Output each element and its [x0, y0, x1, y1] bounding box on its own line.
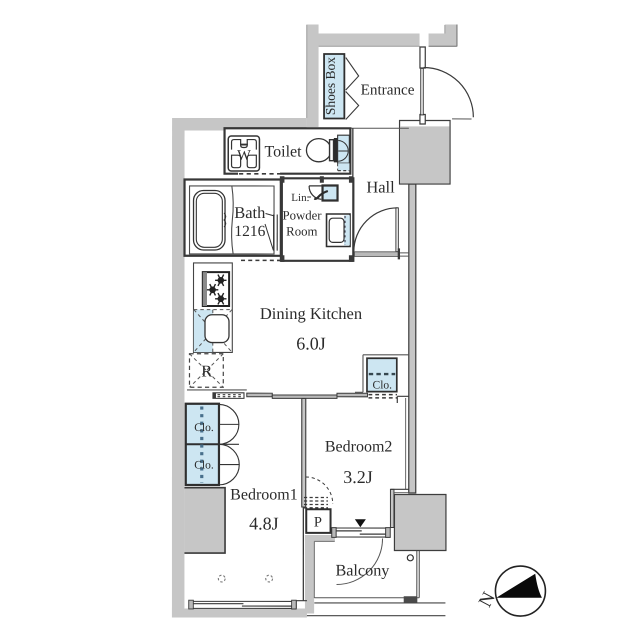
svg-text:3.2J: 3.2J: [343, 467, 373, 487]
svg-text:Clo.: Clo.: [194, 459, 214, 471]
svg-text:Dining Kitchen: Dining Kitchen: [260, 304, 362, 323]
svg-text:Clo.: Clo.: [194, 422, 214, 434]
svg-text:Shoes Box: Shoes Box: [323, 57, 338, 115]
svg-text:6.0J: 6.0J: [296, 333, 326, 353]
svg-text:W: W: [237, 148, 251, 164]
svg-text:Bedroom2: Bedroom2: [325, 439, 393, 456]
svg-text:Toilet: Toilet: [264, 143, 302, 160]
svg-text:Balcony: Balcony: [335, 562, 390, 580]
svg-text:Bedroom1: Bedroom1: [230, 486, 298, 503]
svg-text:Lin.: Lin.: [291, 192, 309, 204]
svg-text:4.8J: 4.8J: [249, 513, 279, 533]
svg-text:R: R: [201, 361, 212, 380]
svg-text:Hall: Hall: [366, 178, 395, 197]
svg-text:Powder: Powder: [282, 208, 322, 222]
svg-text:Clo.: Clo.: [373, 380, 393, 392]
svg-text:Bath: Bath: [234, 203, 266, 222]
svg-text:Entrance: Entrance: [361, 82, 415, 99]
svg-text:Room: Room: [286, 224, 317, 238]
svg-text:P: P: [314, 514, 322, 530]
svg-text:1216: 1216: [234, 223, 265, 240]
